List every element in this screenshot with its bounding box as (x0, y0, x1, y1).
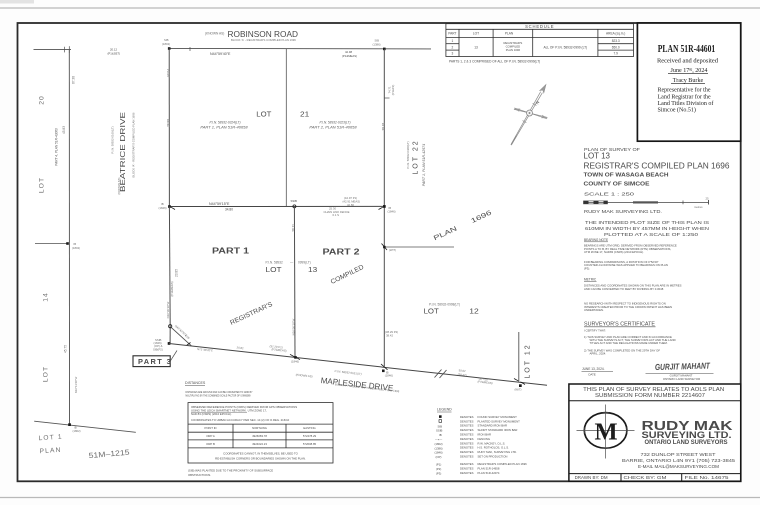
svg-text:REGISTRAR'S COMPILED PLAN 1696: REGISTRAR'S COMPILED PLAN 1696 (478, 462, 528, 466)
svg-text:I CERTIFY THAT:: I CERTIFY THAT: (584, 328, 606, 332)
svg-text:SHORT STANDARD IRON BAR: SHORT STANDARD IRON BAR (478, 428, 518, 432)
svg-text:DENOTES: DENOTES (460, 428, 474, 432)
svg-text:34.80: 34.80 (225, 208, 233, 212)
svg-text:(P1&SET): (P1&SET) (108, 51, 121, 55)
svg-text:P.I.N. 58932: P.I.N. 58932 (266, 261, 284, 265)
svg-text:4924022.23: 4924022.23 (252, 442, 267, 446)
svg-text:(WIT): (WIT) (515, 388, 522, 392)
svg-text:(P1&MEAS): (P1&MEAS) (170, 281, 174, 296)
svg-text:572608.85: 572608.85 (303, 442, 317, 446)
svg-text:(1846): (1846) (388, 210, 396, 214)
svg-text:PART 1, PLAN 51R-40658: PART 1, PLAN 51R-40658 (200, 125, 248, 130)
svg-text:DENOTES: DENOTES (460, 424, 474, 428)
svg-text:PART 2, PLAN 51R-40658: PART 2, PLAN 51R-40658 (309, 125, 357, 130)
svg-text:Received and deposited: Received and deposited (657, 59, 718, 65)
svg-text:REGISTRAR'S COMPILED PLAN 1: REGISTRAR'S COMPILED PLAN 1696 (584, 161, 730, 170)
svg-text:FILE No. 14675: FILE No. 14675 (685, 475, 730, 480)
svg-text:(1846): (1846) (291, 359, 299, 363)
svg-text:PLAN 51R-42074: PLAN 51R-42074 (478, 471, 500, 475)
svg-text:0999(LT): 0999(LT) (298, 261, 311, 265)
svg-text:(P3).: (P3). (584, 266, 590, 270)
svg-text:DENOTES: DENOTES (460, 450, 474, 454)
svg-text:THE INTENDED PLOT SIZE OF: THE INTENDED PLOT SIZE OF THIS PLAN IS (585, 220, 709, 225)
svg-text:P.I.N. 58932-0468(LT): P.I.N. 58932-0468(LT) (406, 141, 410, 168)
svg-text:Representative for the: Representative for the (658, 87, 711, 94)
svg-text:N44°59'15"E: N44°59'15"E (209, 202, 230, 206)
svg-text:572478.29: 572478.29 (303, 434, 317, 438)
svg-text:(P1): (P1) (436, 463, 441, 467)
svg-text:PART 4, PLAN 51R-43060: PART 4, PLAN 51R-43060 (55, 128, 59, 166)
svg-text:H.S. ROTHOLOS, O.L.S.: H.S. ROTHOLOS, O.L.S. (478, 446, 510, 450)
svg-text:13: 13 (474, 45, 478, 49)
svg-text:COUNTY OF SIMCOE: COUNTY OF SIMCOE (584, 181, 650, 187)
svg-text:Land Titles Division of: Land Titles Division of (658, 100, 714, 107)
svg-text:(1386): (1386) (435, 446, 443, 450)
svg-text:(SIB) WAS PLANTED DUE TO THE P: (SIB) WAS PLANTED DUE TO THE PROXIMITY O… (188, 468, 273, 472)
svg-text:(P1&MEAS): (P1&MEAS) (342, 54, 357, 58)
svg-text:ONTARIO LAND SURVEYOR: ONTARIO LAND SURVEYOR (663, 377, 700, 381)
svg-text:SUBMISSION FORM NUMBER 2214: SUBMISSION FORM NUMBER 2214607 (595, 393, 705, 399)
svg-text:RUDY MAK SURVEYING LTD.: RUDY MAK SURVEYING LTD. (584, 209, 662, 215)
svg-text:(P2): (P2) (436, 467, 441, 471)
svg-text:PLAN: PLAN (505, 32, 514, 36)
svg-text:Tracy Burke: Tracy Burke (673, 78, 704, 84)
svg-text:P.I.N. 58932-0998(LT): P.I.N. 58932-0998(LT) (429, 303, 460, 307)
svg-text:ONTARIO LAND SURVEYORS: ONTARIO LAND SURVEYORS (645, 439, 728, 446)
svg-text:BARRIE, ONTARIO L4N 9Y1: BARRIE, ONTARIO L4N 9Y1 (705) 723-3845 (622, 458, 736, 463)
svg-text:UTM ZONE 17, NAD83 (CSRS) (201: UTM ZONE 17, NAD83 (CSRS) (2010 EPOCH). (584, 250, 644, 254)
svg-text:DENOTES: DENOTES (460, 433, 474, 437)
svg-text:ALL OF P.I.N. 58932-0999 (LT): ALL OF P.I.N. 58932-0999 (LT) (543, 45, 587, 49)
svg-text:14: 14 (43, 292, 50, 302)
svg-text:13: 13 (308, 265, 317, 274)
svg-text:FENCING: FENCING (478, 437, 491, 441)
svg-text:(KNOWN AS): (KNOWN AS) (117, 177, 121, 194)
svg-text:METRIC: METRIC (584, 278, 597, 282)
svg-text:42.80: 42.80 (347, 203, 354, 207)
svg-text:(P3): (P3) (436, 472, 441, 476)
svg-text:LOT 22: LOT 22 (413, 139, 420, 174)
svg-text:IRON BAR: IRON BAR (478, 433, 492, 437)
svg-text:DISTANCES: DISTANCES (185, 381, 206, 385)
svg-text:DENOTES: DENOTES (460, 446, 474, 450)
svg-text:COORDINATES CANNOT, IN THEMSEL: COORDINATES CANNOT, IN THEMSELVES, BE US… (223, 451, 298, 455)
svg-text:38.81: 38.81 (381, 122, 385, 130)
svg-text:DATE: DATE (589, 372, 596, 376)
svg-text:LOT: LOT (473, 32, 479, 36)
svg-text:N44°59'40"E: N44°59'40"E (210, 52, 231, 56)
svg-text:N16°11'40"W: N16°11'40"W (74, 376, 78, 393)
svg-text:SSIB: SSIB (291, 199, 298, 203)
svg-text:RUDY MAK, SURVEYING LTD.: RUDY MAK, SURVEYING LTD. (478, 450, 518, 454)
svg-text:PLAN 1696: PLAN 1696 (506, 48, 521, 52)
svg-text:DRAWN BY: DM: DRAWN BY: DM (575, 475, 609, 480)
svg-text:COUNTER-CLOCKWISE WAS APPLIED: COUNTER-CLOCKWISE WAS APPLIED TO BEARING… (584, 263, 668, 267)
svg-text:87.38: 87.38 (72, 76, 76, 84)
svg-text:BLOCK 'A' - REGISTRAR'S COMP: BLOCK 'A' - REGISTRAR'S COMPILED PLAN 16… (231, 38, 296, 42)
svg-text:3: 3 (452, 52, 454, 56)
svg-text:DENOTES: DENOTES (460, 471, 474, 475)
svg-text:TOWN OF WASAGA BEACH: TOWN OF WASAGA BEACH (584, 172, 669, 178)
svg-text:LOT 12: LOT 12 (525, 343, 532, 378)
svg-text:UNDERTAKEN.: UNDERTAKEN. (584, 308, 604, 312)
svg-text:45.83: 45.83 (62, 126, 66, 134)
svg-text:0.1 S: 0.1 S (333, 213, 340, 217)
svg-text:BLOCK 'A' - REGISTRAR'S COMPIL: BLOCK 'A' - REGISTRAR'S COMPILED PLAN 16… (132, 112, 136, 177)
svg-text:PART 3: PART 3 (138, 357, 172, 366)
svg-text:DENOTES: DENOTES (460, 441, 474, 445)
svg-text:LOT: LOT (424, 308, 440, 315)
svg-text:25: 25 (706, 197, 710, 201)
svg-text:DENOTES: DENOTES (460, 462, 474, 466)
svg-text:4926083.78: 4926083.78 (252, 434, 267, 438)
svg-text:R.W. MACKEY, O.L.S.: R.W. MACKEY, O.L.S. (478, 441, 506, 445)
svg-text:N16°30'10"W: N16°30'10"W (292, 318, 296, 335)
svg-text:610MM IN WIDTH BY 457MM I: 610MM IN WIDTH BY 457MM IN HEIGHT WHEN (585, 226, 709, 231)
svg-text:POINT ID: POINT ID (204, 426, 216, 430)
svg-text:OBSTRUCTIONS.: OBSTRUCTIONS. (188, 473, 211, 477)
svg-text:DENOTES: DENOTES (460, 467, 474, 471)
svg-text:LOT: LOT (256, 110, 272, 119)
svg-text:LOT 13: LOT 13 (584, 152, 611, 161)
svg-text:SIB: SIB (438, 424, 443, 428)
svg-text:(KNOWN AS): (KNOWN AS) (205, 32, 224, 36)
svg-text:BEARING NOTE: BEARING NOTE (584, 238, 608, 242)
svg-text:PART 1: PART 1 (212, 247, 250, 256)
svg-text:STANDARD IRON BAR: STANDARD IRON BAR (478, 424, 507, 428)
svg-text:7.9: 7.9 (613, 52, 618, 56)
svg-text:LOT: LOT (266, 265, 283, 274)
svg-text:(1802): (1802) (162, 42, 170, 46)
svg-text:SCHEDULE: SCHEDULE (525, 24, 554, 29)
svg-text:GURJIT MAHANT: GURJIT MAHANT (655, 361, 711, 372)
svg-text:(1802): (1802) (435, 442, 443, 446)
svg-text:metres: metres (694, 205, 703, 209)
svg-text:SCALE 1 : 250: SCALE 1 : 250 (584, 192, 635, 197)
svg-text:PART 2: PART 2 (323, 247, 361, 256)
svg-text:(WIT): (WIT) (389, 248, 396, 252)
svg-text:823.3: 823.3 (612, 39, 620, 43)
svg-text:(1846): (1846) (159, 206, 167, 210)
svg-text:(1846): (1846) (385, 374, 393, 378)
svg-text:SSIB: SSIB (436, 429, 443, 433)
svg-text:ORP A: ORP A (206, 434, 215, 438)
svg-text:38.42: 38.42 (386, 334, 393, 338)
svg-text:PLOTTED AT A SCALE OF 1:2: PLOTTED AT A SCALE OF 1:250 (604, 232, 699, 237)
svg-text:DENOTES: DENOTES (460, 419, 474, 423)
svg-text:PART 1, PLAN 51R-42574: PART 1, PLAN 51R-42574 (422, 144, 426, 186)
svg-text:N16°30'10"W: N16°30'10"W (166, 301, 170, 318)
svg-text:June 17ⁿʲ, 2024: June 17ⁿʲ, 2024 (671, 67, 708, 74)
svg-text:45.75: 45.75 (63, 345, 67, 353)
svg-text:PARTS 1, 2 & 3 COMPRISED OF AL: PARTS 1, 2 & 3 COMPRISED OF ALL OF P.I.N… (449, 60, 540, 64)
svg-text:2: 2 (452, 45, 454, 49)
svg-text:(OP): (OP) (436, 455, 442, 459)
svg-text:DENOTES: DENOTES (460, 437, 474, 441)
svg-text:28.88: 28.88 (167, 119, 171, 127)
svg-text:NORTHING: NORTHING (252, 426, 267, 430)
svg-text:TITLES ACT AND THE REGULATIONS: TITLES ACT AND THE REGULATIONS MADE UNDE… (590, 341, 668, 345)
svg-text:ORP B: ORP B (206, 442, 215, 446)
svg-text:PART: PART (448, 32, 456, 36)
svg-text:COORDINATES TO URBAN ACCURACY: COORDINATES TO URBAN ACCURACY PER SEC. 1… (191, 418, 290, 422)
svg-text:650.0: 650.0 (612, 45, 620, 49)
svg-text:DENOTES: DENOTES (460, 455, 474, 459)
svg-text:20.82: 20.82 (236, 346, 244, 351)
svg-text:21: 21 (300, 110, 309, 119)
svg-text:P.I.N. 58932-0160(LT): P.I.N. 58932-0160(LT) (111, 126, 115, 153)
svg-text:SIB(P2): SIB(P2) (153, 347, 163, 351)
svg-text:E-MAIL MAIL@MAKSURVEYING.COM: E-MAIL MAIL@MAKSURVEYING.COM (638, 464, 719, 469)
svg-text:732 DUNLOP STREET WEST: 732 DUNLOP STREET WEST (641, 452, 716, 457)
svg-text:FOUND SURVEY MONUMENT: FOUND SURVEY MONUMENT (478, 415, 518, 419)
svg-text:RE-ESTABLISH CORNERS OR BOUNDA: RE-ESTABLISH CORNERS OR BOUNDARIES SHOWN… (215, 456, 306, 460)
svg-text:CHECK BY: GM: CHECK BY: GM (624, 475, 668, 480)
svg-text:SET ON PRODUCTION: SET ON PRODUCTION (478, 455, 508, 459)
svg-text:(P1&P2): (P1&P2) (391, 85, 395, 96)
svg-text:AND CAN BE CONVERTED TO FEET B: AND CAN BE CONVERTED TO FEET BY DIVIDING… (584, 287, 664, 291)
svg-text:AREA (sq.m.): AREA (sq.m.) (606, 32, 625, 36)
svg-text:20: 20 (39, 95, 46, 105)
svg-text:LOT: LOT (43, 366, 50, 382)
svg-text:PLAN 51R-14658: PLAN 51R-14658 (478, 467, 500, 471)
svg-text:Simcoe (No.51): Simcoe (No.51) (658, 107, 696, 114)
svg-text:EASTING: EASTING (303, 426, 315, 430)
svg-text:Land Registrar for the: Land Registrar for the (658, 93, 711, 100)
svg-text:(1846): (1846) (435, 451, 443, 455)
svg-text:(1802): (1802) (73, 429, 81, 433)
svg-text:(1802): (1802) (72, 246, 80, 250)
svg-text:PLANTED SURVEY MONUMENT: PLANTED SURVEY MONUMENT (478, 419, 521, 423)
svg-text:1: 1 (452, 39, 454, 43)
svg-text:DENOTES: DENOTES (460, 415, 474, 419)
svg-text:NAD 83 (CSRS) (2010 EPOCH).: NAD 83 (CSRS) (2010 EPOCH). (191, 412, 232, 416)
svg-text:38.11: 38.11 (292, 224, 296, 232)
svg-text:—×—: —×— (435, 438, 442, 442)
svg-text:M: M (594, 419, 617, 446)
svg-text:23.85: 23.85 (175, 269, 179, 277)
svg-text:93.04: 93.04 (167, 69, 171, 77)
svg-text:MULTIPLYING BY THE COMBINED SC: MULTIPLYING BY THE COMBINED SCALE FACTOR… (186, 393, 251, 397)
svg-text:IB: IB (439, 433, 442, 437)
svg-text:LEGEND: LEGEND (437, 408, 452, 412)
svg-text:LOT: LOT (39, 177, 46, 193)
svg-text:PLAN 51R-44601: PLAN 51R-44601 (658, 44, 716, 55)
svg-text:APRIL, 2024.: APRIL, 2024. (590, 352, 607, 356)
svg-text:JUNE 13, 2024.: JUNE 13, 2024. (582, 367, 605, 371)
svg-text:(1386): (1386) (373, 42, 381, 46)
svg-text:12: 12 (469, 308, 479, 315)
